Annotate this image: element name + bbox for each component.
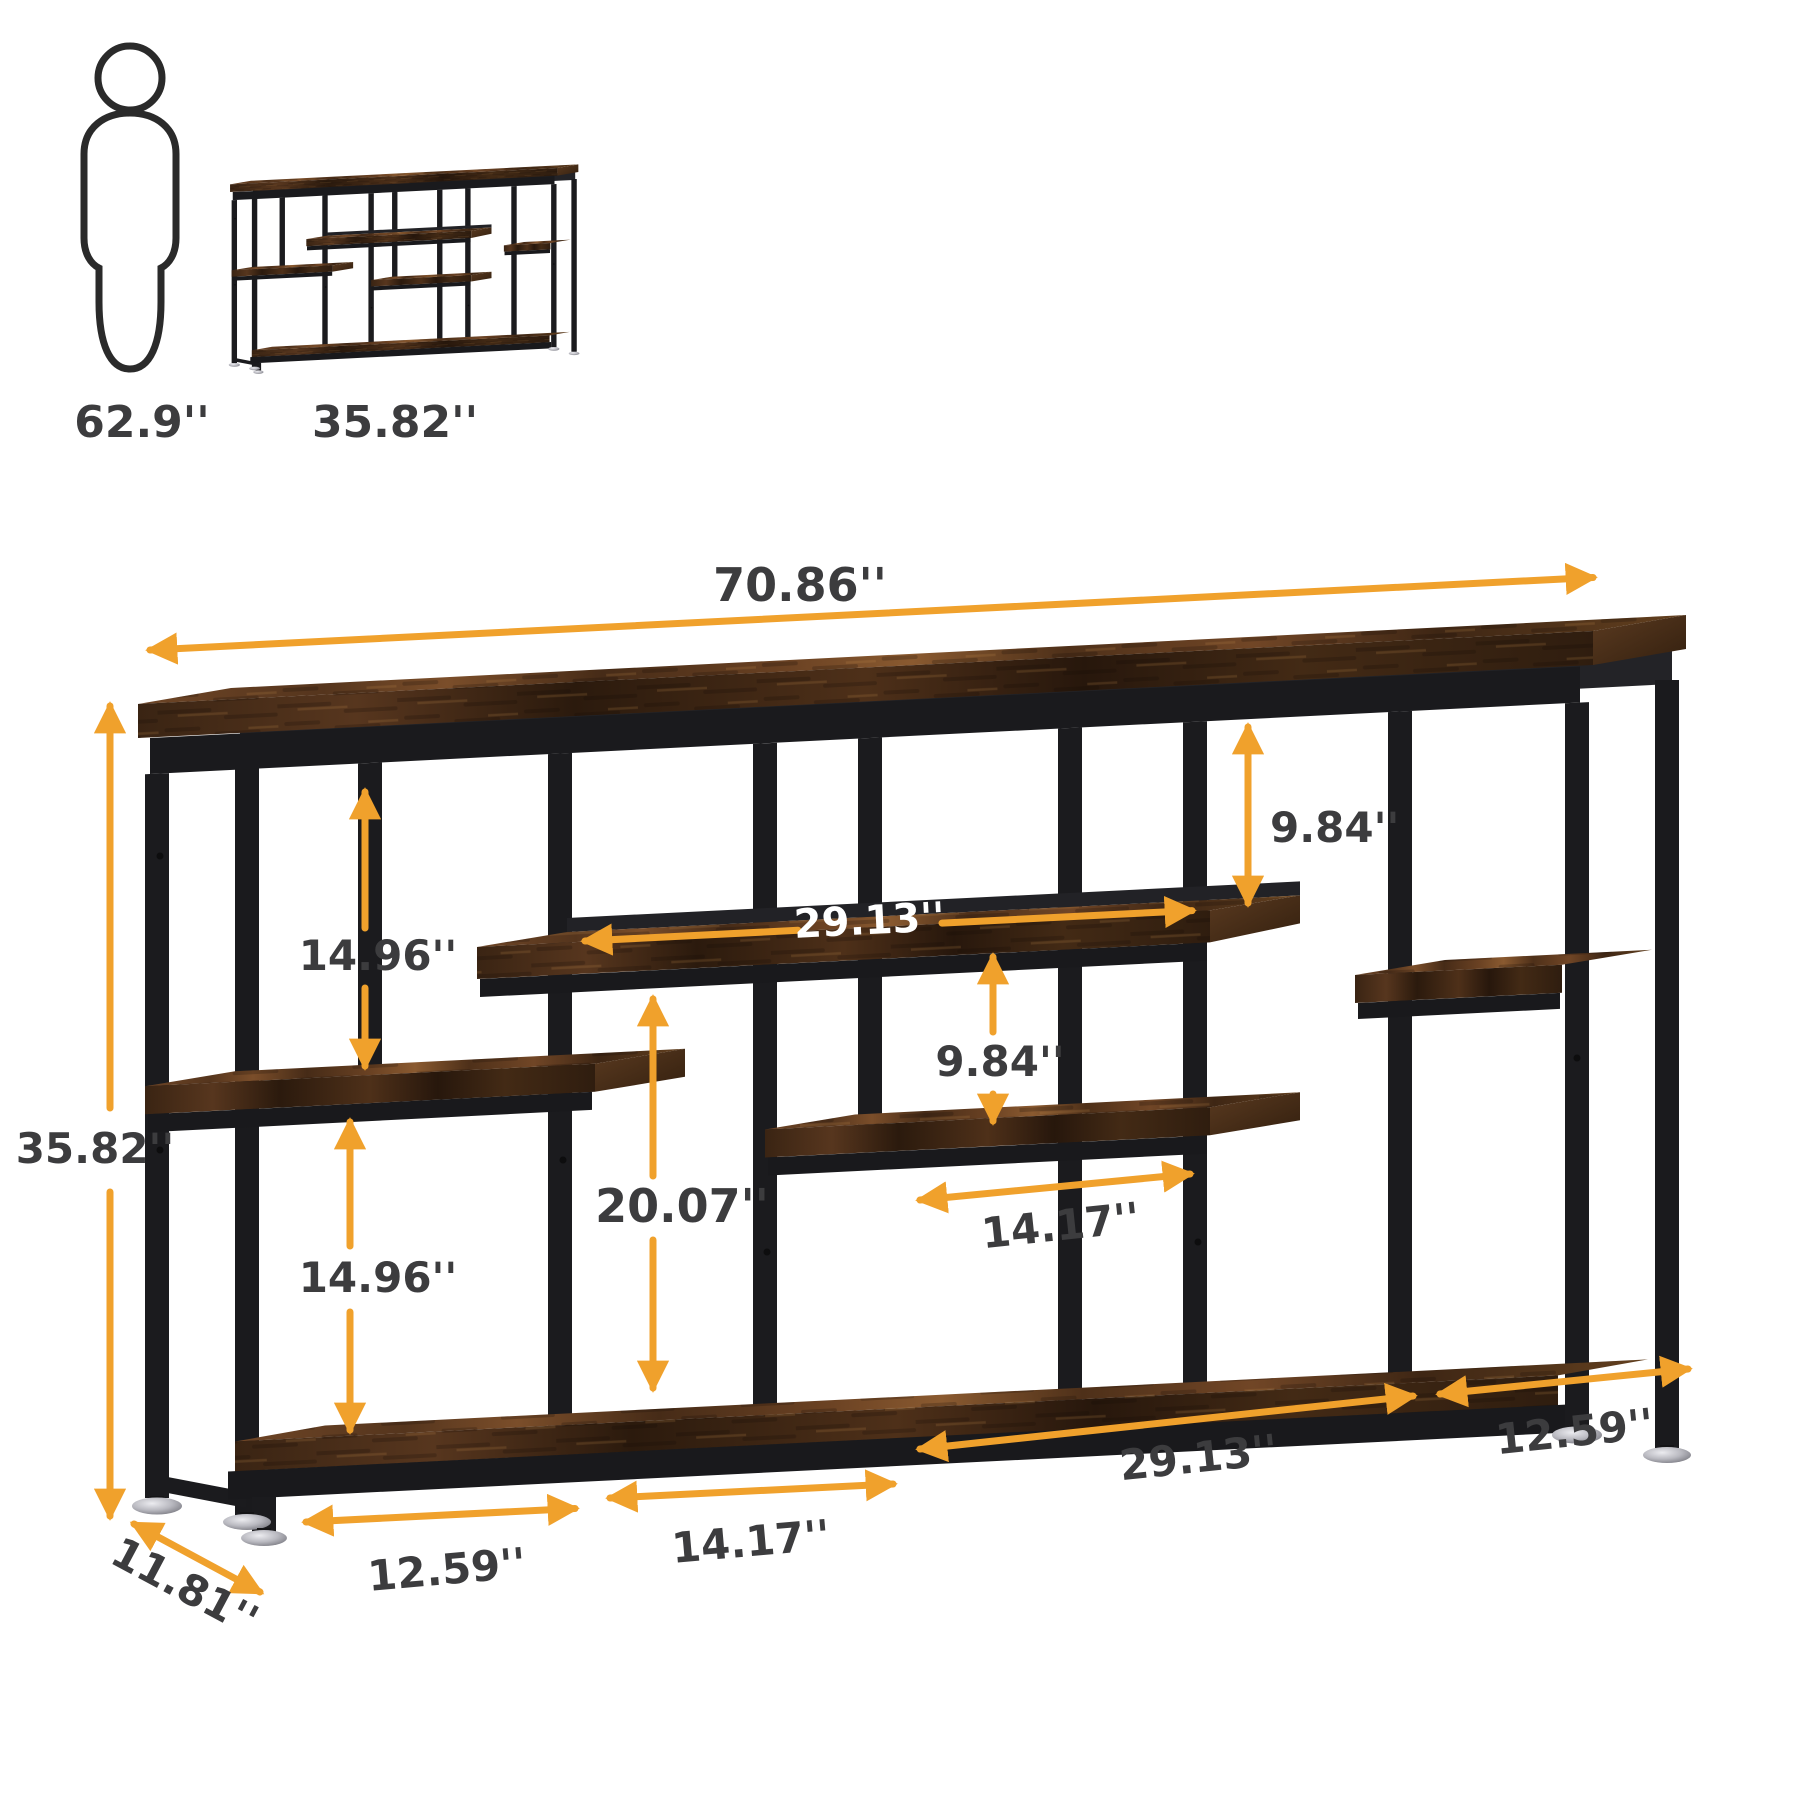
dim-width-label: 70.86'': [713, 558, 887, 612]
person-height-label: 62.9'': [74, 397, 210, 448]
scale-reference: 62.9'' 35.82'': [74, 46, 579, 448]
dim-left-upper-gap-label: 14.96'': [299, 931, 458, 980]
person-silhouette-icon: [84, 46, 176, 369]
dim-bottom-center-label: 14.17'': [670, 1510, 832, 1573]
diagram-canvas: 62.9'' 35.82'' 70.86'' 35.82'' 11.81'' 1…: [0, 0, 1800, 1800]
product-thumbnail: [229, 164, 580, 373]
dim-bottom-center-arrow: [610, 1484, 893, 1498]
dim-center-gap-label: 20.07'': [595, 1179, 769, 1233]
back-right-leg: [1655, 680, 1679, 1448]
console-table-illustration: [132, 615, 1691, 1546]
front-right-leg: [1565, 702, 1589, 1428]
middle-lower-shelf: [765, 1092, 1300, 1175]
left-middle-shelf: [145, 1049, 685, 1133]
dim-depth-label: 11.81'': [103, 1527, 266, 1645]
dim-bottom-left-arrow: [306, 1509, 575, 1523]
dim-left-lower-gap-label: 14.96'': [299, 1253, 458, 1302]
thumbnail-width-label: 35.82'': [312, 397, 478, 448]
post-6: [1183, 721, 1207, 1394]
dim-right-upper-gap-label: 9.84'': [1270, 803, 1399, 852]
dim-bottom-left-label: 12.59'': [366, 1538, 528, 1601]
post-3: [753, 743, 777, 1416]
dim-upper-shelf-label: 29.13'': [793, 894, 946, 948]
dim-middle-shelf-label: 14.17'': [979, 1193, 1142, 1258]
dim-height-label: 35.82'': [16, 1124, 175, 1173]
dim-middle-shelf-arrow: [920, 1174, 1190, 1200]
dim-middle-gap-label: 9.84'': [935, 1037, 1064, 1086]
product-dimension-diagram: 62.9'' 35.82'' 70.86'' 35.82'' 11.81'' 1…: [0, 0, 1800, 1800]
back-left-leg: [235, 752, 259, 1516]
